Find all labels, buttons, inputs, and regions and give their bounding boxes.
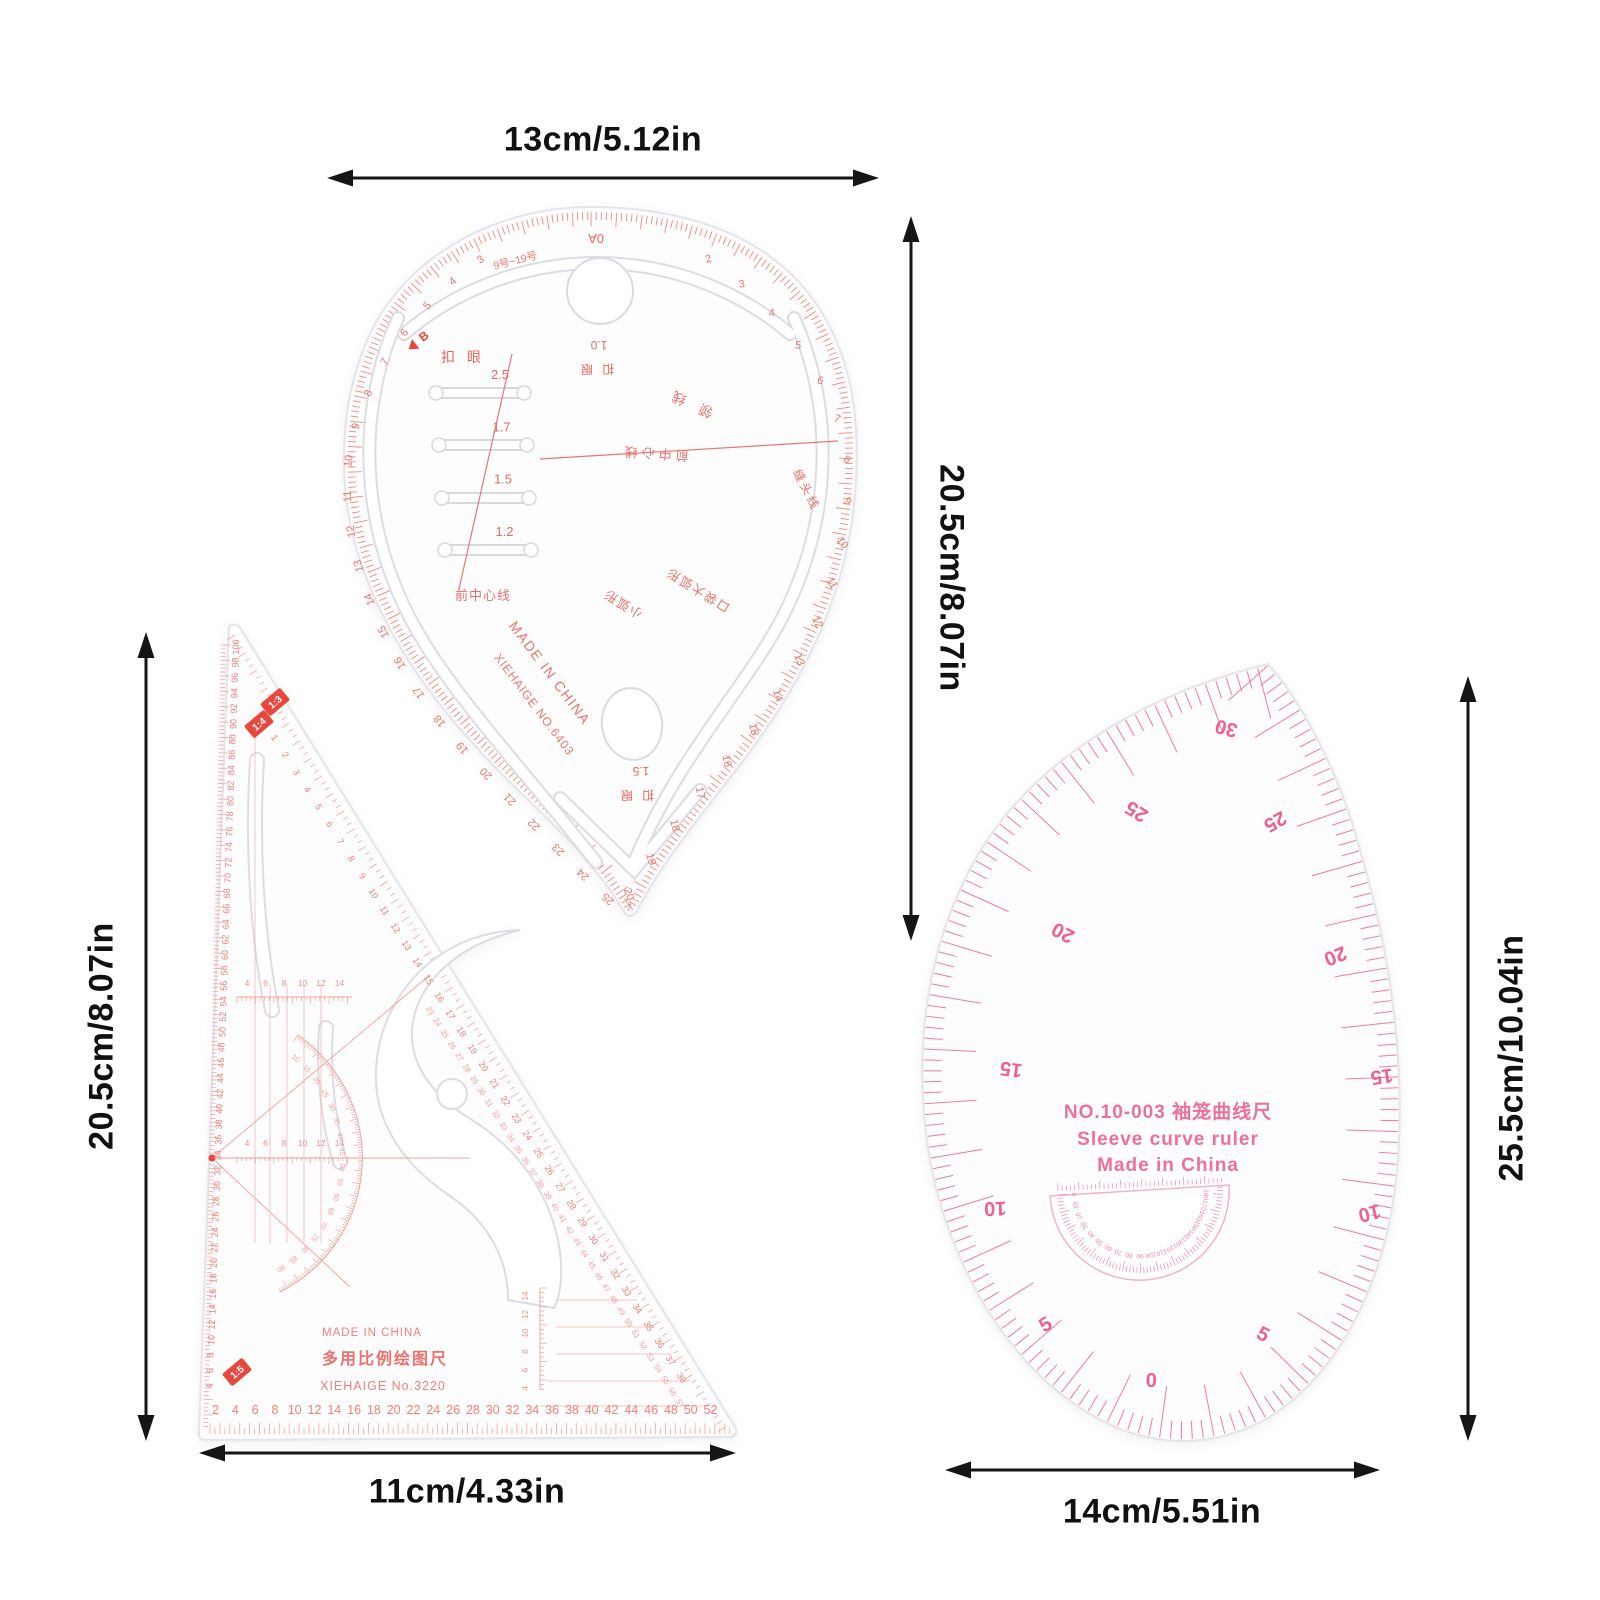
svg-text:34: 34 [525,1403,539,1417]
svg-text:12: 12 [207,1320,217,1330]
svg-text:50: 50 [684,1403,698,1417]
svg-text:4: 4 [245,978,250,988]
svg-text:55: 55 [335,1178,343,1187]
svg-text:74: 74 [224,842,234,852]
svg-text:44: 44 [624,1403,638,1417]
svg-text:44: 44 [216,1073,226,1083]
svg-text:5: 5 [795,339,802,351]
svg-text:1.2: 1.2 [495,524,513,539]
svg-text:60: 60 [220,950,230,960]
svg-text:2.5: 2.5 [491,367,509,382]
svg-text:24: 24 [575,866,592,883]
svg-text:14: 14 [335,978,345,988]
svg-text:46: 46 [216,1058,226,1068]
svg-text:18: 18 [367,1403,381,1417]
svg-text:18: 18 [208,1273,218,1283]
svg-text:42: 42 [605,1403,619,1417]
svg-text:22: 22 [407,1403,421,1417]
teardrop-ruler: 0A 9号~19号 B 扣 眼 2.51.71.51.2 前中心线 领 线 前中… [342,207,857,916]
svg-text:86: 86 [227,750,237,760]
svg-text:18: 18 [431,712,448,729]
svg-text:30: 30 [486,1403,500,1417]
sleeve-height-label: 25.5cm/10.04in [1493,934,1532,1181]
triangle-height-arrow [138,632,155,1441]
svg-text:32: 32 [212,1166,222,1176]
svg-text:8: 8 [282,1138,287,1148]
svg-text:92: 92 [229,704,239,714]
buttonhole-label: 扣 眼 [441,349,485,365]
svg-text:28: 28 [211,1196,221,1206]
svg-text:90: 90 [1136,1252,1144,1259]
svg-text:15: 15 [1369,1064,1394,1089]
svg-text:10: 10 [206,1335,216,1345]
svg-text:48: 48 [217,1042,227,1052]
svg-text:70: 70 [223,873,233,883]
teardrop-top-mark: 0A [588,231,604,246]
svg-text:17: 17 [693,786,707,800]
svg-text:16: 16 [347,1403,361,1417]
svg-text:94: 94 [229,688,239,698]
triangle-width-arrow [199,1445,736,1462]
svg-text:16: 16 [208,1289,218,1299]
svg-text:4: 4 [232,1403,239,1417]
svg-text:54: 54 [218,996,228,1006]
svg-text:10: 10 [298,978,308,988]
svg-text:36: 36 [545,1403,559,1417]
hole-large-label: 扣 眼 [618,788,654,802]
svg-text:10: 10 [521,1328,530,1337]
svg-text:96: 96 [230,673,240,683]
svg-text:22: 22 [210,1243,220,1253]
svg-text:62: 62 [221,935,231,945]
hole-small-label: 扣 眼 [578,362,614,376]
svg-text:26: 26 [446,1403,460,1417]
triangle-width-label: 11cm/4.33in [369,1473,565,1512]
svg-text:12: 12 [316,978,326,988]
triangle-brand: XIEHAIGE No.3220 [320,1379,446,1393]
svg-text:66: 66 [222,904,232,914]
svg-text:24: 24 [210,1227,220,1237]
sleeve-width-arrow [945,1462,1380,1479]
svg-text:10: 10 [342,454,355,468]
svg-text:6: 6 [263,1138,268,1148]
svg-text:17: 17 [411,684,428,701]
svg-text:4: 4 [769,307,776,319]
svg-text:26: 26 [211,1212,221,1222]
svg-text:36: 36 [213,1135,223,1145]
sleeve-name: Sleeve curve ruler [1077,1129,1259,1150]
svg-text:58: 58 [219,965,229,975]
teardrop-height-label: 20.5cm/8.07in [932,464,971,692]
svg-text:4: 4 [205,1384,215,1389]
svg-text:6: 6 [252,1403,259,1417]
svg-text:1.7: 1.7 [492,419,510,434]
svg-text:12: 12 [521,1310,530,1319]
sleeve-model: NO.10-003 袖笼曲线尺 [1064,1100,1272,1123]
teardrop-width-arrow [327,170,879,187]
svg-text:52: 52 [704,1403,718,1417]
svg-text:76: 76 [224,827,234,837]
svg-text:0: 0 [1145,1370,1157,1392]
svg-text:78: 78 [225,811,235,821]
svg-text:14: 14 [335,1138,345,1148]
sleeve-origin: Made in China [1097,1155,1239,1176]
svg-text:2: 2 [212,1403,219,1417]
svg-text:98: 98 [230,657,240,667]
svg-text:30: 30 [212,1181,222,1191]
svg-text:42: 42 [215,1089,225,1099]
svg-text:8: 8 [271,1403,278,1417]
svg-text:14: 14 [207,1304,217,1314]
svg-text:4: 4 [245,1138,250,1148]
teardrop-hole-top [567,258,633,324]
svg-text:21: 21 [502,790,519,807]
svg-text:24: 24 [426,1403,440,1417]
svg-text:82: 82 [226,781,236,791]
french-curve-curl [437,1079,467,1109]
svg-text:8: 8 [521,1349,530,1354]
svg-text:10: 10 [298,1138,308,1148]
svg-text:72: 72 [223,858,233,868]
teardrop-height-arrow [903,216,920,941]
svg-text:14: 14 [521,1291,530,1300]
svg-text:40: 40 [585,1403,599,1417]
svg-text:68: 68 [222,888,232,898]
svg-text:11: 11 [342,490,355,502]
svg-text:8: 8 [206,1353,216,1358]
svg-text:64: 64 [221,919,231,929]
triangle-height-label: 20.5cm/8.07in [83,922,122,1150]
teardrop-width-label: 13cm/5.12in [504,121,702,160]
sleeve-height-arrow [1460,676,1477,1441]
svg-text:52: 52 [218,1012,228,1022]
product-photo: 0A 9号~19号 B 扣 眼 2.51.71.51.2 前中心线 领 线 前中… [0,0,1600,1600]
svg-text:10: 10 [288,1403,302,1417]
svg-text:19: 19 [454,739,471,756]
svg-text:1.5: 1.5 [494,472,512,487]
triangle-product-name: 多用比例绘图尺 [322,1349,448,1368]
triangle-made-in: MADE IN CHINA [322,1327,422,1339]
svg-text:20: 20 [387,1403,401,1417]
hole-large-value: 1.5 [632,764,649,778]
svg-text:15: 15 [999,1057,1024,1082]
svg-text:38: 38 [565,1403,579,1417]
svg-text:84: 84 [227,765,237,775]
sleeve-width-label: 14cm/5.51in [1063,1493,1261,1532]
svg-text:12: 12 [316,1138,326,1148]
svg-text:6: 6 [263,978,268,988]
svg-text:90: 90 [228,719,238,729]
svg-text:50: 50 [337,1163,345,1171]
sleeve-curve-ruler: 0102030405060708090100110120130140150160… [922,664,1399,1441]
svg-text:8: 8 [282,978,287,988]
svg-text:6: 6 [521,1367,530,1372]
svg-text:40: 40 [215,1104,225,1114]
svg-text:80: 80 [226,796,236,806]
svg-text:15: 15 [746,722,760,736]
svg-text:23: 23 [550,841,567,858]
svg-text:10: 10 [984,1197,1007,1220]
svg-text:14: 14 [327,1403,341,1417]
svg-text:34: 34 [213,1150,223,1160]
svg-text:6: 6 [205,1368,215,1373]
svg-text:38: 38 [214,1119,224,1129]
svg-text:100: 100 [231,639,241,654]
svg-text:56: 56 [219,981,229,991]
svg-text:12: 12 [308,1403,322,1417]
svg-text:16: 16 [719,754,733,768]
svg-text:12: 12 [345,524,359,538]
svg-text:180: 180 [1201,1189,1209,1201]
hole-small-value: 1.0 [590,338,607,352]
svg-text:88: 88 [228,734,238,744]
svg-text:45: 45 [338,1148,345,1156]
svg-text:50: 50 [217,1027,227,1037]
svg-text:32: 32 [506,1403,520,1417]
svg-text:20: 20 [478,765,495,782]
svg-text:4: 4 [521,1386,530,1391]
svg-text:22: 22 [526,816,543,833]
svg-text:20: 20 [209,1258,219,1268]
svg-text:46: 46 [644,1403,658,1417]
rulers-artwork: 0A 9号~19号 B 扣 眼 2.51.71.51.2 前中心线 领 线 前中… [0,0,1600,1600]
svg-text:28: 28 [466,1403,480,1417]
front-center-bottom: 前中心线 [455,588,511,603]
